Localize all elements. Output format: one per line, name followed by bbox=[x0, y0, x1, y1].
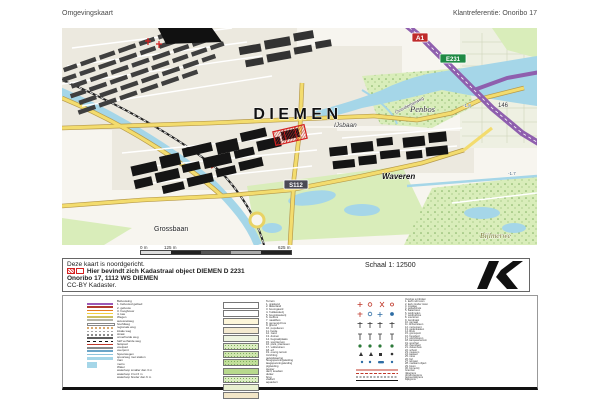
scale-bar: 0 m 125 m 625 m bbox=[140, 245, 292, 255]
parcel-outline-icon bbox=[76, 268, 84, 274]
map-canvas: A1 E231 S112 DIEMEN IJsbaan Penbos Overd… bbox=[62, 28, 537, 245]
map-label-bijlmerweide: Bijlmerwe bbox=[480, 231, 511, 240]
object-note: Hier bevindt zich Kadastraal object DIEM… bbox=[67, 268, 245, 275]
omgevingskaart-page: Omgevingskaart Klantreferentie: Onoribo … bbox=[0, 0, 600, 400]
map-label-146: 146 bbox=[498, 103, 509, 109]
map-label-grossbaan: Grossbaan bbox=[154, 226, 188, 233]
scale-bar-segments bbox=[140, 250, 292, 255]
info-box: Deze kaart is noordgericht. Hier bevindt… bbox=[62, 258, 530, 292]
topographic-map: A1 E231 S112 DIEMEN IJsbaan Penbos Overd… bbox=[62, 28, 537, 245]
kadaster-logo bbox=[477, 261, 523, 291]
page-header: Omgevingskaart Klantreferentie: Onoribo … bbox=[62, 10, 537, 20]
legend-symbols bbox=[356, 300, 401, 387]
svg-text:A1: A1 bbox=[416, 35, 425, 42]
map-label-ijsbaan: IJsbaan bbox=[334, 122, 357, 129]
parcel-hatch-icon bbox=[67, 268, 75, 274]
address-line: Onoribo 17, 1112 WS DIEMEN bbox=[67, 275, 245, 282]
svg-text:S112: S112 bbox=[289, 183, 303, 189]
legend-roads-text: Bebouwing 1. bebouwd gebied 2. gebouw 3.… bbox=[117, 300, 217, 379]
large-building-north bbox=[158, 28, 222, 44]
shield-s112: S112 bbox=[284, 180, 308, 189]
map-label-diemen: DIEMEN bbox=[253, 106, 342, 123]
legend-symbols-text: Overige symbolen 1. kerk met toren 2. ke… bbox=[405, 299, 533, 382]
legend: Bebouwing 1. bebouwd gebied 2. gebouw 3.… bbox=[62, 295, 538, 390]
legend-line-samples bbox=[87, 303, 113, 369]
info-text: Deze kaart is noordgericht. Hier bevindt… bbox=[67, 261, 245, 289]
map-label-depth-17: -1.7 bbox=[508, 171, 516, 176]
license-line: CC-BY Kadaster. bbox=[67, 282, 245, 289]
scale-text: Schaal 1: 12500 bbox=[365, 262, 416, 269]
north-note: Deze kaart is noordgericht. bbox=[67, 261, 245, 268]
svg-text:E231: E231 bbox=[446, 57, 461, 63]
legend-terrain-text: Terrein 1. grasland 2. akkerland 3. boom… bbox=[266, 300, 354, 384]
map-label-waveren: Waveren bbox=[382, 172, 415, 181]
legend-terrain-swatches bbox=[223, 302, 257, 400]
shield-a1: A1 bbox=[412, 33, 428, 42]
client-reference: Klantreferentie: Onoribo 17 bbox=[453, 10, 537, 17]
page-title: Omgevingskaart bbox=[62, 10, 113, 17]
shield-e231: E231 bbox=[440, 54, 466, 63]
map-label-depth-18: -1.8 bbox=[463, 103, 471, 108]
roundabout bbox=[250, 213, 264, 227]
